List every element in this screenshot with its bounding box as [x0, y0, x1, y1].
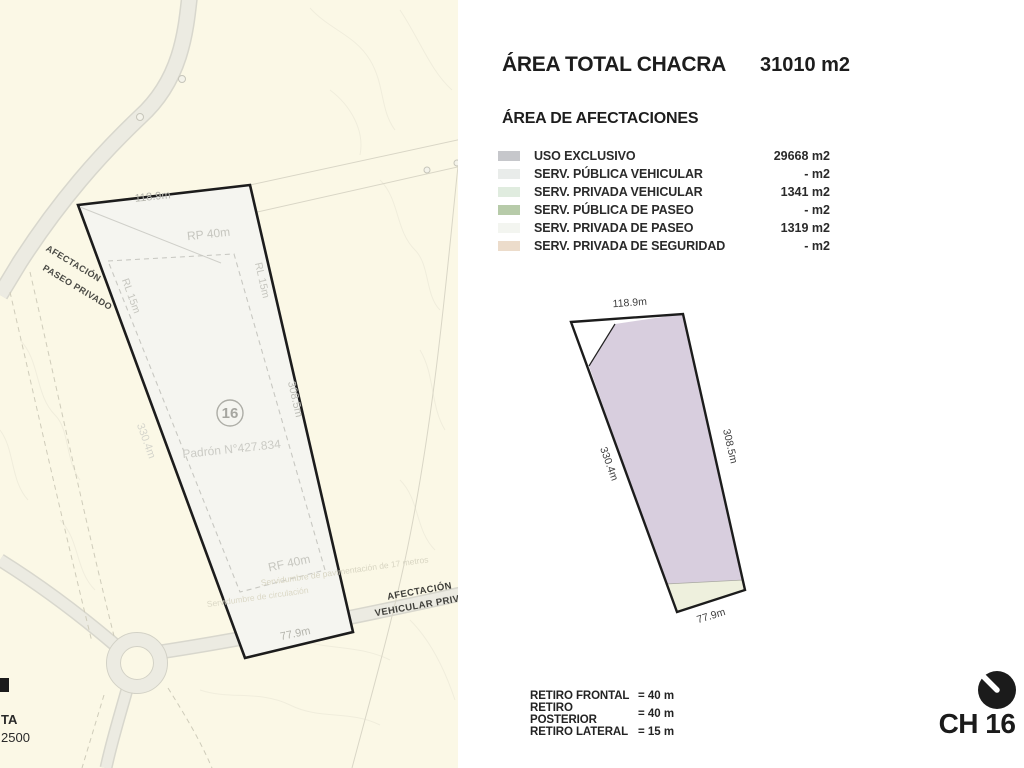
legend-value: 1341 m2: [781, 185, 830, 199]
legend-value: - m2: [804, 239, 830, 253]
page-title: ÁREA TOTAL CHACRA: [502, 53, 726, 77]
retiros-table: RETIRO FRONTAL = 40 m RETIRO POSTERIOR =…: [530, 687, 680, 741]
legend-label: SERV. PÚBLICA VEHICULAR: [534, 167, 804, 181]
legend-row: USO EXCLUSIVO 29668 m2: [498, 147, 830, 165]
plan-sheet: 118.9m RP 40m RL 15m RL 15m 308.5m 330.4…: [0, 0, 1024, 768]
corner-scale: 2500: [1, 730, 30, 745]
schematic-length-right: 308.5m: [720, 428, 740, 465]
schematic-uso-exclusivo: [589, 314, 743, 584]
legend-swatch-publica-vehicular: [498, 169, 520, 179]
corner-mark: [0, 678, 9, 692]
legend-swatch-publica-paseo: [498, 205, 520, 215]
parcel-number: 16: [222, 405, 239, 422]
total-area-value: 31010 m2: [760, 54, 850, 77]
corner-label: TA: [1, 712, 18, 727]
schematic-front-strip: [666, 580, 745, 612]
brand-name: CH 16: [930, 708, 1024, 740]
legend-value: 29668 m2: [774, 149, 830, 163]
legend-swatch-uso-exclusivo: [498, 151, 520, 161]
legend-value: 1319 m2: [781, 221, 830, 235]
legend-row: SERV. PÚBLICA VEHICULAR - m2: [498, 165, 830, 183]
legend-swatch-privada-seguridad: [498, 241, 520, 251]
parcel-schematic: 118.9m 308.5m 330.4m 77.9m: [540, 272, 790, 642]
legend-label: USO EXCLUSIVO: [534, 149, 774, 163]
legend-label: SERV. PRIVADA DE PASEO: [534, 221, 781, 235]
legend-label: SERV. PRIVADA DE SEGURIDAD: [534, 239, 804, 253]
legend-value: - m2: [804, 167, 830, 181]
legend-row: SERV. PRIVADA VEHICULAR 1341 m2: [498, 183, 830, 201]
legend-label: SERV. PRIVADA VEHICULAR: [534, 185, 781, 199]
retiro-value: = 15 m: [638, 726, 674, 738]
retiro-label: RETIRO LATERAL: [530, 726, 638, 738]
legend-label: SERV. PÚBLICA DE PASEO: [534, 203, 804, 217]
schematic-length-bottom: 77.9m: [695, 606, 727, 626]
legend: USO EXCLUSIVO 29668 m2 SERV. PÚBLICA VEH…: [498, 147, 830, 255]
cadastral-map: 118.9m RP 40m RL 15m RL 15m 308.5m 330.4…: [0, 0, 458, 768]
legend-swatch-privada-vehicular: [498, 187, 520, 197]
retiro-value: = 40 m: [638, 708, 674, 720]
retiro-label: RETIRO FRONTAL: [530, 690, 638, 702]
legend-value: - m2: [804, 203, 830, 217]
legend-title: ÁREA DE AFECTACIONES: [502, 110, 698, 128]
legend-row: SERV. PÚBLICA DE PASEO - m2: [498, 201, 830, 219]
retiro-label: RETIRO POSTERIOR: [530, 702, 638, 726]
legend-swatch-privada-paseo: [498, 223, 520, 233]
retiro-row: RETIRO POSTERIOR = 40 m: [530, 705, 680, 723]
panel-title-row: ÁREA TOTAL CHACRA 31010 m2: [502, 53, 850, 77]
retiro-row: RETIRO LATERAL = 15 m: [530, 723, 680, 741]
retiro-value: = 40 m: [638, 690, 674, 702]
schematic-length-top: 118.9m: [612, 296, 647, 310]
brand-logo-icon: [962, 662, 1024, 710]
legend-row: SERV. PRIVADA DE SEGURIDAD - m2: [498, 237, 830, 255]
legend-row: SERV. PRIVADA DE PASEO 1319 m2: [498, 219, 830, 237]
